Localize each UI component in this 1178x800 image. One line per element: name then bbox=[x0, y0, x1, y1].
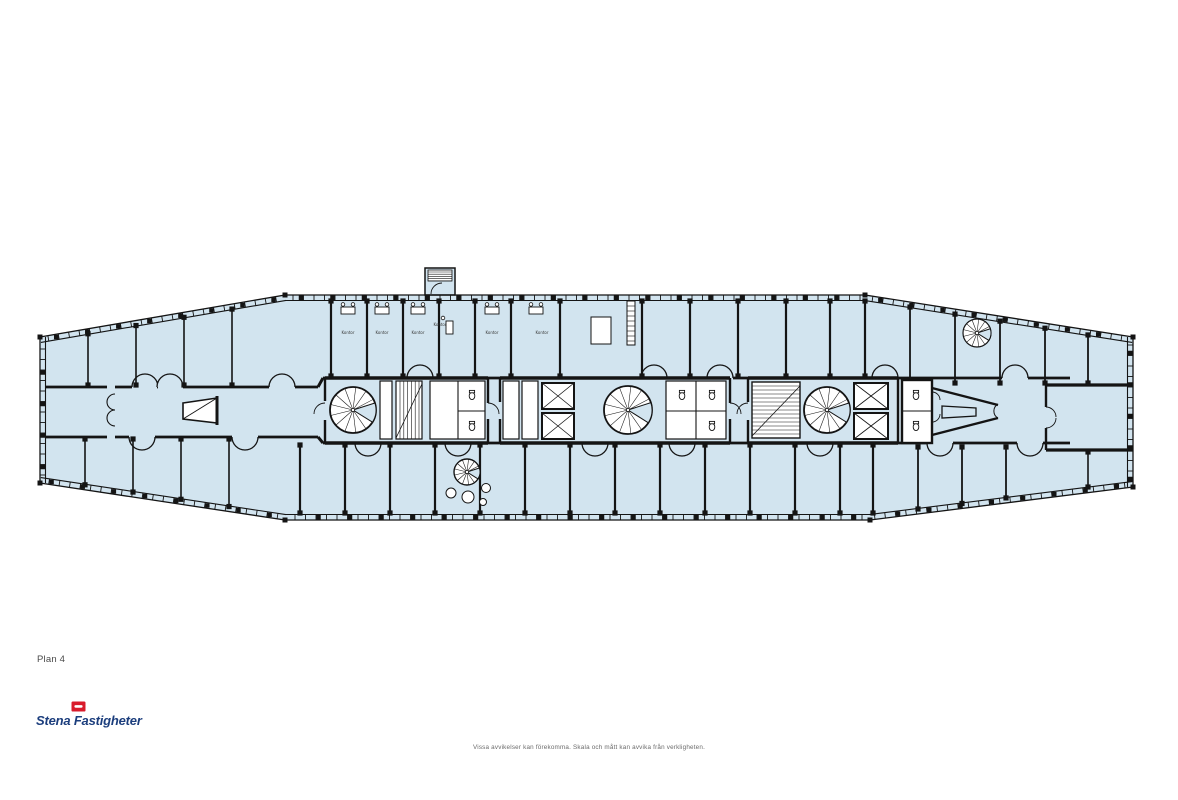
facade-post bbox=[537, 515, 542, 520]
facade-post bbox=[147, 319, 152, 324]
corner-column bbox=[1131, 335, 1136, 340]
wall-junction bbox=[557, 298, 562, 303]
toilet-tank bbox=[469, 390, 474, 392]
wall-junction bbox=[432, 510, 437, 515]
office-desk bbox=[375, 307, 389, 314]
wall-junction bbox=[702, 510, 707, 515]
corner-column bbox=[38, 335, 43, 340]
facade-post bbox=[878, 298, 883, 303]
facade-post bbox=[940, 308, 945, 313]
wall-junction bbox=[436, 298, 441, 303]
wall-junction bbox=[130, 436, 135, 441]
toilet-tank bbox=[709, 421, 714, 423]
facade-post bbox=[143, 494, 148, 499]
floor-plan-page: Kontor Kontor Kontor Kontor Kontor Konto… bbox=[0, 0, 1178, 800]
wall-junction bbox=[915, 444, 920, 449]
facade-post bbox=[663, 515, 668, 520]
wall-junction bbox=[783, 298, 788, 303]
lounge-table bbox=[482, 484, 491, 493]
office-chair bbox=[495, 303, 499, 307]
shaft bbox=[503, 381, 519, 439]
facade-post bbox=[677, 296, 682, 301]
facade-post bbox=[316, 515, 321, 520]
corner-column bbox=[283, 518, 288, 523]
toilet-icon bbox=[913, 423, 919, 430]
facade-post bbox=[299, 296, 304, 301]
facade-post bbox=[236, 508, 241, 513]
facade-post bbox=[174, 499, 179, 504]
lounge-table bbox=[462, 491, 474, 503]
facade-post bbox=[726, 515, 731, 520]
facade-post bbox=[971, 313, 976, 318]
wall-junction bbox=[870, 510, 875, 515]
room-label-kontor: Kontor bbox=[433, 322, 446, 327]
wall-junction bbox=[915, 506, 920, 511]
office-desk bbox=[446, 321, 453, 334]
wall-junction bbox=[959, 444, 964, 449]
wall-junction bbox=[735, 373, 740, 378]
facade-post bbox=[896, 511, 901, 516]
facade-post bbox=[505, 515, 510, 520]
wall-junction bbox=[178, 497, 183, 502]
office-chair bbox=[385, 303, 389, 307]
toilet-icon bbox=[709, 392, 715, 399]
wall-junction bbox=[862, 298, 867, 303]
spiral-center bbox=[351, 408, 354, 411]
toilet-tank bbox=[709, 390, 714, 392]
facade-post bbox=[820, 515, 825, 520]
wall-junction bbox=[907, 304, 912, 309]
facade-post bbox=[411, 515, 416, 520]
facade-post bbox=[1065, 327, 1070, 332]
facade-post bbox=[645, 296, 650, 301]
corner-column bbox=[38, 481, 43, 486]
wall-junction bbox=[567, 510, 572, 515]
wall-junction bbox=[612, 510, 617, 515]
facade-post bbox=[614, 296, 619, 301]
entrance-stair bbox=[428, 270, 452, 281]
facade-post bbox=[708, 296, 713, 301]
wall-junction bbox=[297, 442, 302, 447]
facade-post bbox=[600, 515, 605, 520]
facade-post bbox=[582, 296, 587, 301]
wall-junction bbox=[1003, 495, 1008, 500]
wall-junction bbox=[827, 298, 832, 303]
facade-post bbox=[927, 508, 932, 513]
wall-junction bbox=[226, 504, 231, 509]
toilet-tank bbox=[679, 390, 684, 392]
office-chair bbox=[375, 303, 379, 307]
toilet-tank bbox=[469, 421, 474, 423]
office-chair bbox=[485, 303, 489, 307]
toilet-icon bbox=[679, 392, 685, 399]
office-desk bbox=[485, 307, 499, 314]
facade-post bbox=[49, 480, 54, 485]
facade-post bbox=[519, 296, 524, 301]
lounge-chair bbox=[480, 499, 487, 506]
facade-post bbox=[267, 513, 272, 518]
wall-junction bbox=[657, 510, 662, 515]
office-chair bbox=[539, 303, 543, 307]
wall-junction bbox=[952, 380, 957, 385]
wedge-room bbox=[942, 406, 976, 418]
wall-junction bbox=[130, 489, 135, 494]
facade-post bbox=[771, 296, 776, 301]
facade-post bbox=[240, 303, 245, 308]
spiral-center bbox=[626, 408, 629, 411]
wall-junction bbox=[472, 298, 477, 303]
toilet-icon bbox=[913, 392, 919, 399]
office-chair bbox=[411, 303, 415, 307]
office-desk bbox=[411, 307, 425, 314]
wall-junction bbox=[229, 306, 234, 311]
wall-junction bbox=[342, 510, 347, 515]
office-desk bbox=[341, 307, 355, 314]
wall-junction bbox=[837, 510, 842, 515]
wall-junction bbox=[85, 331, 90, 336]
room-label-kontor: Kontor bbox=[411, 330, 424, 335]
wall-junction bbox=[1085, 449, 1090, 454]
facade-post bbox=[348, 515, 353, 520]
facade-post bbox=[551, 296, 556, 301]
stena-logo-mark bbox=[74, 705, 82, 708]
shaft bbox=[522, 381, 538, 439]
corner-column bbox=[868, 518, 873, 523]
stena-logo: Stena Fastigheter bbox=[36, 701, 120, 728]
room-label-kontor: Kontor bbox=[341, 330, 354, 335]
wall-junction bbox=[477, 510, 482, 515]
wall-junction bbox=[997, 319, 1002, 324]
facade-post bbox=[393, 296, 398, 301]
office-chair bbox=[351, 303, 355, 307]
wall-junction bbox=[1085, 484, 1090, 489]
facade-post bbox=[694, 515, 699, 520]
facade-post bbox=[834, 296, 839, 301]
room-label-kontor: Kontor bbox=[375, 330, 388, 335]
toilet-tank bbox=[913, 390, 918, 392]
floor-plan: Kontor Kontor Kontor Kontor Kontor Konto… bbox=[30, 255, 1145, 540]
toilet-icon bbox=[469, 392, 475, 399]
office-chair bbox=[421, 303, 425, 307]
lounge-table bbox=[446, 488, 456, 498]
facade-post bbox=[271, 298, 276, 303]
toilet-icon bbox=[469, 423, 475, 430]
wall-junction bbox=[229, 382, 234, 387]
wall-junction bbox=[387, 510, 392, 515]
wall-junction bbox=[1042, 326, 1047, 331]
wall-junction bbox=[297, 510, 302, 515]
wall-junction bbox=[952, 312, 957, 317]
facade-post bbox=[1128, 414, 1133, 419]
wall-junction bbox=[508, 298, 513, 303]
spiral-center bbox=[825, 408, 828, 411]
wall-junction bbox=[687, 298, 692, 303]
facade-post bbox=[631, 515, 636, 520]
office-chair bbox=[441, 316, 445, 320]
facade-post bbox=[41, 465, 46, 470]
spiral-center bbox=[465, 470, 468, 473]
facade-post bbox=[1021, 496, 1026, 501]
facade-post bbox=[474, 515, 479, 520]
facade-post bbox=[112, 489, 117, 494]
facade-post bbox=[442, 515, 447, 520]
facade-post bbox=[209, 308, 214, 313]
facade-post bbox=[488, 296, 493, 301]
wall-junction bbox=[997, 380, 1002, 385]
facade-post bbox=[379, 515, 384, 520]
facade-post bbox=[990, 500, 995, 505]
wall-junction bbox=[747, 510, 752, 515]
shaft bbox=[380, 381, 392, 439]
facade-post bbox=[205, 503, 210, 508]
facade-post bbox=[1128, 351, 1133, 356]
plan-level-label: Plan 4 bbox=[37, 654, 65, 665]
facade-post bbox=[1034, 322, 1039, 327]
shelf-unit bbox=[627, 301, 635, 345]
facade-post bbox=[41, 370, 46, 375]
wall-junction bbox=[639, 298, 644, 303]
wall-junction bbox=[226, 436, 231, 441]
wall-junction bbox=[522, 510, 527, 515]
wall-junction bbox=[792, 510, 797, 515]
wall-junction bbox=[1085, 332, 1090, 337]
wall-junction bbox=[82, 482, 87, 487]
corner-column bbox=[283, 293, 288, 298]
wall-junction bbox=[133, 382, 138, 387]
wall-junction bbox=[364, 298, 369, 303]
facade-post bbox=[54, 335, 59, 340]
toilet-icon bbox=[709, 423, 715, 430]
stena-logo-icon bbox=[71, 701, 86, 712]
toilet-tank bbox=[913, 421, 918, 423]
storage-room bbox=[183, 398, 217, 423]
room-label-kontor: Kontor bbox=[535, 330, 548, 335]
facade-post bbox=[41, 433, 46, 438]
wall-junction bbox=[959, 501, 964, 506]
facade-post bbox=[803, 296, 808, 301]
facade-post bbox=[1115, 484, 1120, 489]
floor-plan-geometry bbox=[38, 268, 1136, 523]
office-chair bbox=[529, 303, 533, 307]
facade-post bbox=[757, 515, 762, 520]
stena-logo-text: Stena Fastigheter bbox=[36, 713, 120, 728]
facade-post bbox=[789, 515, 794, 520]
office-desk bbox=[529, 307, 543, 314]
wall-junction bbox=[82, 436, 87, 441]
facade-post bbox=[1128, 477, 1133, 482]
facade-post bbox=[1096, 332, 1101, 337]
wall-junction bbox=[181, 382, 186, 387]
disclaimer-text: Vissa avvikelser kan förekomma. Skala oc… bbox=[0, 744, 1178, 751]
facade-post bbox=[568, 515, 573, 520]
wall-junction bbox=[735, 298, 740, 303]
wall-junction bbox=[133, 323, 138, 328]
corner-column bbox=[863, 293, 868, 298]
wall-junction bbox=[181, 315, 186, 320]
wall-junction bbox=[178, 436, 183, 441]
facade-post bbox=[456, 296, 461, 301]
wall-junction bbox=[328, 298, 333, 303]
meeting-table bbox=[591, 317, 611, 344]
corner-column bbox=[1131, 485, 1136, 490]
facade-post bbox=[1003, 317, 1008, 321]
facade-post bbox=[41, 402, 46, 407]
room-label-kontor: Kontor bbox=[485, 330, 498, 335]
facade-post bbox=[425, 296, 430, 301]
wall-junction bbox=[1003, 444, 1008, 449]
facade-post bbox=[852, 515, 857, 520]
wall-junction bbox=[85, 382, 90, 387]
facade-post bbox=[1052, 492, 1057, 497]
office-chair bbox=[341, 303, 345, 307]
facade-post bbox=[116, 324, 121, 329]
spiral-center bbox=[975, 331, 978, 334]
wall-junction bbox=[400, 298, 405, 303]
